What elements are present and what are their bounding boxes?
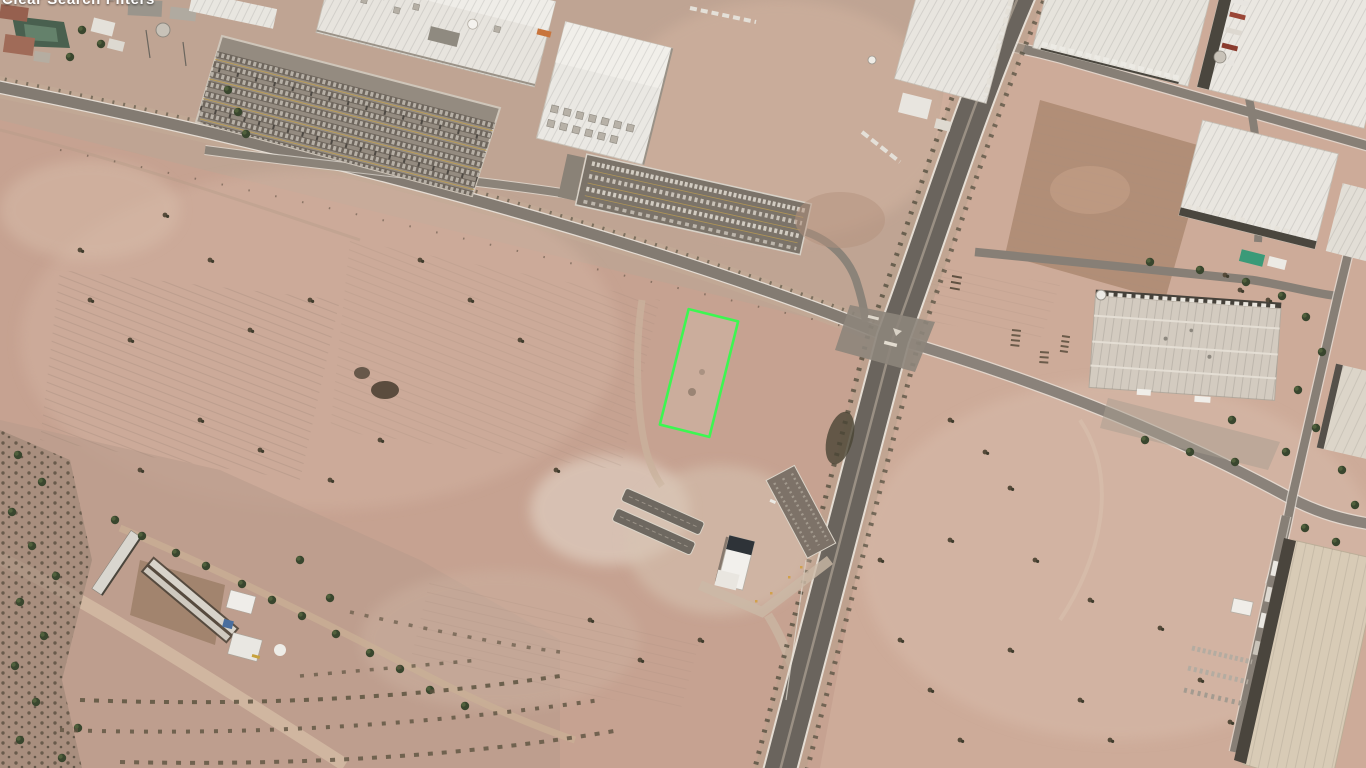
satellite-map-view[interactable]: Clear Search Filters <box>0 0 1366 768</box>
storage-tank <box>1214 51 1226 63</box>
clipped-caption: Clear Search Filters <box>2 0 155 8</box>
